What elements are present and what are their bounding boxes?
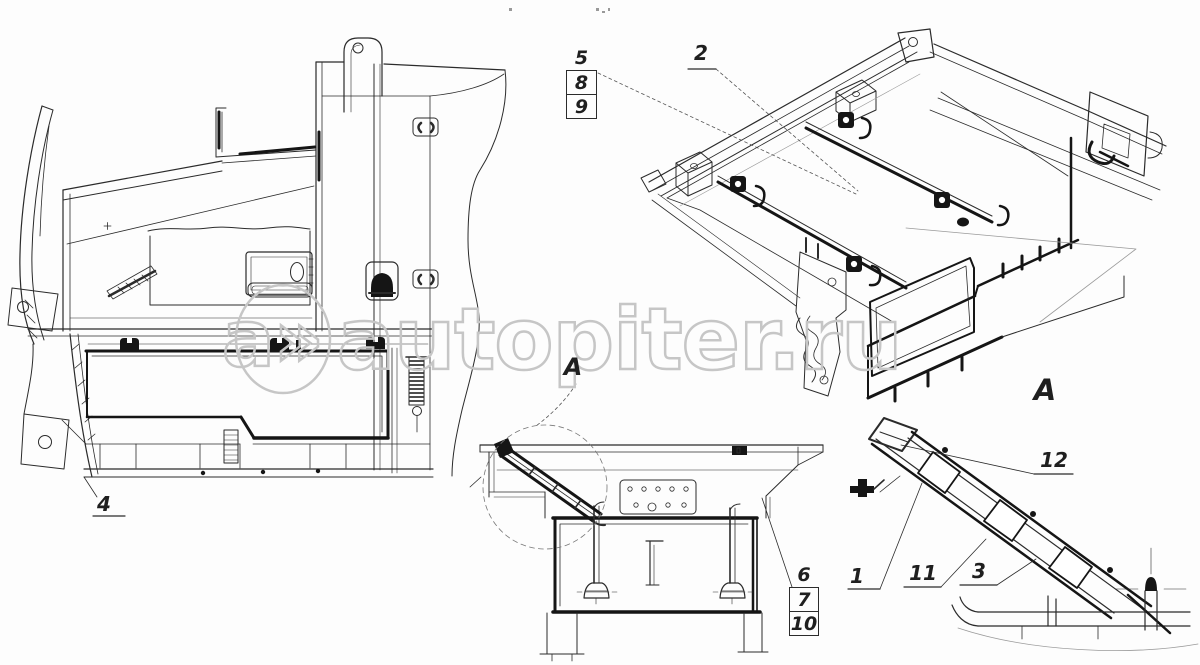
engineering-drawing-canvas <box>0 0 1200 665</box>
callout-2: 2 <box>688 43 714 63</box>
callout-7: 7 <box>790 588 818 611</box>
callout-4: 4 <box>92 494 116 514</box>
callout-8: 8 <box>567 71 596 94</box>
callout-stack-6-7-10: 6 7 10 <box>789 562 819 636</box>
detail-view-title-a: A <box>1029 376 1061 405</box>
callout-12: 12 <box>1036 450 1072 470</box>
callout-3: 3 <box>966 561 992 581</box>
callout-1: 1 <box>850 566 864 586</box>
section-view-marker-a: A <box>560 355 586 379</box>
callout-6: 6 <box>789 562 819 587</box>
cab-side-view-drawing <box>8 38 506 516</box>
callout-10: 10 <box>790 611 818 635</box>
detail-a-ladder-drawing <box>850 418 1198 651</box>
callout-5: 5 <box>566 45 597 70</box>
callout-11: 11 <box>909 563 937 583</box>
callout-stack-5-8-9: 5 8 9 <box>566 45 597 119</box>
catalog-diagram-page: { "watermark": { "prefix": "a»", "domain… <box>0 0 1200 665</box>
isometric-frame-view-drawing <box>641 29 1166 401</box>
callout-9: 9 <box>567 94 596 118</box>
